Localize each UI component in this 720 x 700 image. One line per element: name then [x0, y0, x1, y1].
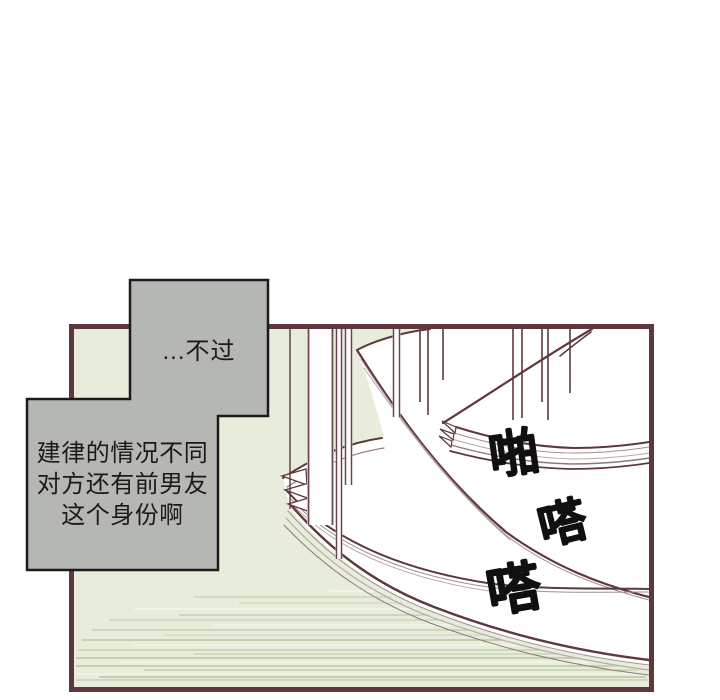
speech-bubble-bottom-text: 建律的情况不同 对方还有前男友 这个身份啊	[27, 401, 218, 568]
sfx-text-ta2: 嗒	[483, 559, 546, 622]
comic-page: 啪 嗒 嗒 ...不过 建律的情况不同 对方还有前男友 这个身份啊	[0, 0, 720, 700]
speech-bubble-top-text: ...不过	[130, 282, 268, 414]
sfx-text-pa: 啪	[486, 426, 542, 482]
